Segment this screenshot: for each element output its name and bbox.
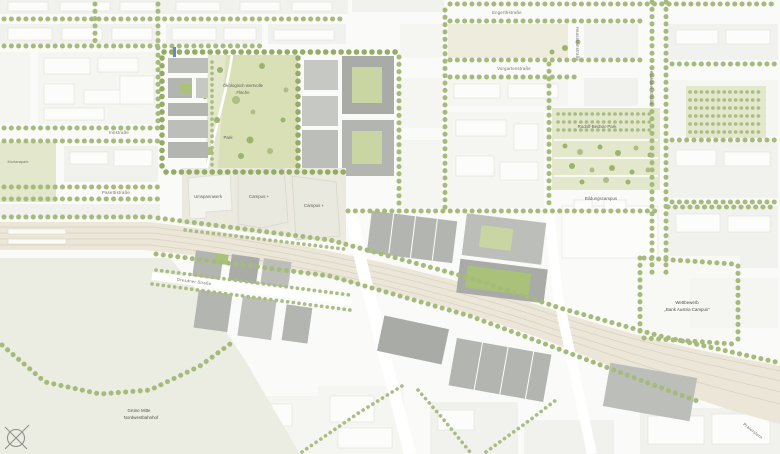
campus-plus-1-label: Campus + — [249, 194, 270, 199]
wettbewerb-label-line1: Wettbewerb — [675, 300, 699, 305]
transit-stop-icon — [173, 47, 176, 57]
vorgartenstrasse-label: Vorgartenstraße — [497, 66, 531, 71]
pasettistrasse-label: Pasettistraße — [102, 190, 130, 195]
rudolf-bednar-park-label: Rudolf-Bednar-Park — [578, 124, 618, 129]
eco-area-label-line1: Ökologisch wertvolle — [223, 83, 264, 88]
krakauer-strasse-label: Krakauer Straße — [649, 71, 654, 106]
eco-area-label-line2: Fläche — [236, 90, 250, 95]
haussteinstrasse-label: Haussteinstraße — [575, 27, 580, 62]
gruene-mitte-label-line2: Nordwestbahnhof — [124, 415, 159, 420]
gruene-mitte-label-line1: Grüne Mitte — [128, 408, 151, 413]
wettbewerb-label-line2: „Bank Austria Campus“ — [664, 307, 710, 312]
umspannwerk-label: Umspannwerk — [194, 194, 223, 199]
mortarapark-label: Mortarapark — [8, 159, 29, 164]
rail-platform — [8, 239, 66, 244]
rail-platform — [8, 229, 66, 234]
orchard-block — [686, 86, 766, 138]
masterplan-map: Ökologisch wertvolle Fläche Park Umspann… — [0, 0, 780, 454]
mortarapark-area — [0, 142, 56, 202]
engerthstrasse-label: Engerthstraße — [492, 10, 522, 15]
park-label: Park — [223, 135, 233, 140]
innstrasse-label: Innstraße — [109, 130, 129, 135]
bildungscampus-label: Bildungscampus — [585, 196, 618, 201]
campus-plus-2-label: Campus + — [304, 203, 325, 208]
masterplan-canvas: Ökologisch wertvolle Fläche Park Umspann… — [0, 0, 780, 454]
campus-building-2 — [292, 176, 340, 240]
